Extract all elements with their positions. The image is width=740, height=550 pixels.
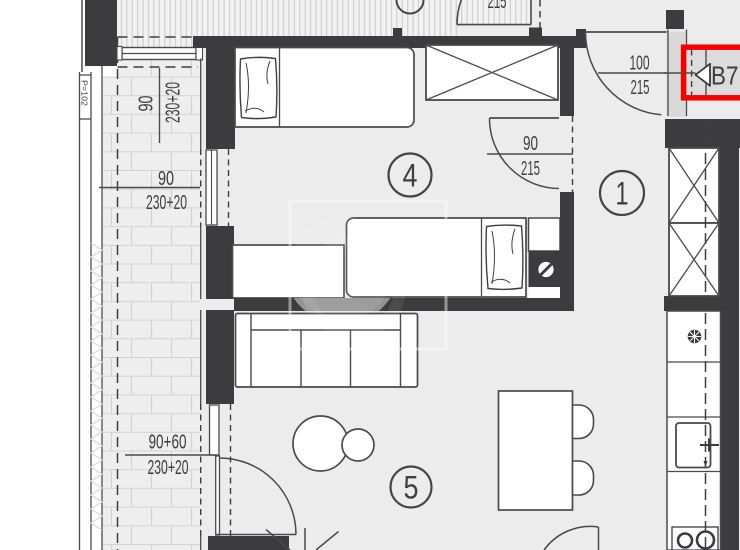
svg-text:90: 90	[158, 167, 174, 190]
svg-text:4: 4	[403, 158, 418, 194]
svg-text:230+20: 230+20	[162, 82, 185, 123]
svg-text:100: 100	[630, 51, 650, 74]
svg-text:1: 1	[616, 176, 629, 212]
svg-text:215: 215	[521, 157, 540, 180]
svg-text:215: 215	[488, 0, 507, 13]
svg-text:90: 90	[135, 96, 158, 112]
svg-text:230+20: 230+20	[148, 456, 189, 479]
svg-text:B7: B7	[711, 60, 739, 90]
svg-text:230+20: 230+20	[146, 191, 187, 214]
svg-text:90: 90	[523, 132, 538, 155]
svg-text:P=102: P=102	[80, 80, 89, 107]
svg-text:90+60: 90+60	[149, 430, 187, 453]
svg-text:5: 5	[404, 470, 419, 506]
svg-text:215: 215	[631, 76, 650, 99]
